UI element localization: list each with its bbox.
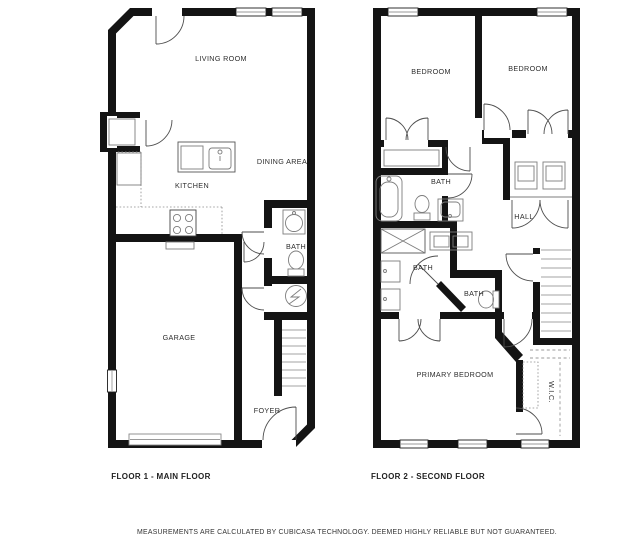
- washer-dryer: [510, 162, 572, 197]
- room-label-bedroom-right: BEDROOM: [508, 64, 548, 73]
- room-label-garage: GARAGE: [163, 333, 196, 342]
- floorplan-image: LIVING ROOM DINING AREA KITCHEN BATH GAR…: [0, 0, 624, 547]
- floorplan-svg: LIVING ROOM DINING AREA KITCHEN BATH GAR…: [0, 0, 624, 547]
- room-label-primary-bedroom: PRIMARY BEDROOM: [417, 370, 494, 379]
- floor1-outer-walls: [108, 8, 315, 448]
- room-label-kitchen: KITCHEN: [175, 181, 209, 190]
- kitchen-island: [178, 142, 235, 172]
- room-label-hall: HALL: [514, 212, 533, 221]
- page: { "floor1": { "caption": "FLOOR 1 - MAIN…: [0, 0, 624, 547]
- floor2-stairs: [541, 250, 571, 331]
- bath2-sink: [438, 199, 463, 221]
- bath2-toilet: [414, 196, 430, 221]
- bath1-toilet: [288, 251, 304, 276]
- room-label-dining-area: DINING AREA: [257, 157, 307, 166]
- captions: FLOOR 1 - MAIN FLOOR FLOOR 2 - SECOND FL…: [111, 472, 557, 536]
- floor2-interior-walls: [373, 16, 572, 412]
- pantry-shelf: [117, 153, 141, 185]
- stove: [166, 210, 196, 249]
- room-label-bath1: BATH: [286, 242, 306, 251]
- floor1-windows: [108, 8, 303, 445]
- floor2-caption: FLOOR 2 - SECOND FLOOR: [371, 472, 485, 481]
- disclaimer-text: MEASUREMENTS ARE CALCULATED BY CUBICASA …: [137, 529, 557, 536]
- room-label-living-room: LIVING ROOM: [195, 54, 247, 63]
- floor2-plan: BEDROOM BEDROOM BATH HALL BATH BATH PRIM…: [373, 8, 580, 448]
- room-label-bedroom-left: BEDROOM: [411, 67, 451, 76]
- floor1-doors: [146, 16, 296, 440]
- water-heater: [286, 286, 307, 307]
- garage-door: [129, 434, 221, 445]
- double-sinks: [381, 261, 400, 310]
- floor1-stairs: [282, 330, 306, 386]
- room-label-wic: W.I.C.: [547, 381, 556, 403]
- bath1-sink: [283, 210, 305, 234]
- room-label-bath-upper: BATH: [431, 177, 451, 186]
- shower: [381, 229, 425, 253]
- room-label-bath-primary: BATH: [413, 263, 433, 272]
- closet-shelf: [384, 150, 439, 166]
- floor1-caption: FLOOR 1 - MAIN FLOOR: [111, 472, 210, 481]
- room-label-bath-small: BATH: [464, 289, 484, 298]
- floor1-plan: LIVING ROOM DINING AREA KITCHEN BATH GAR…: [100, 8, 315, 448]
- wic-shelves: [523, 350, 570, 436]
- room-label-foyer: FOYER: [254, 406, 281, 415]
